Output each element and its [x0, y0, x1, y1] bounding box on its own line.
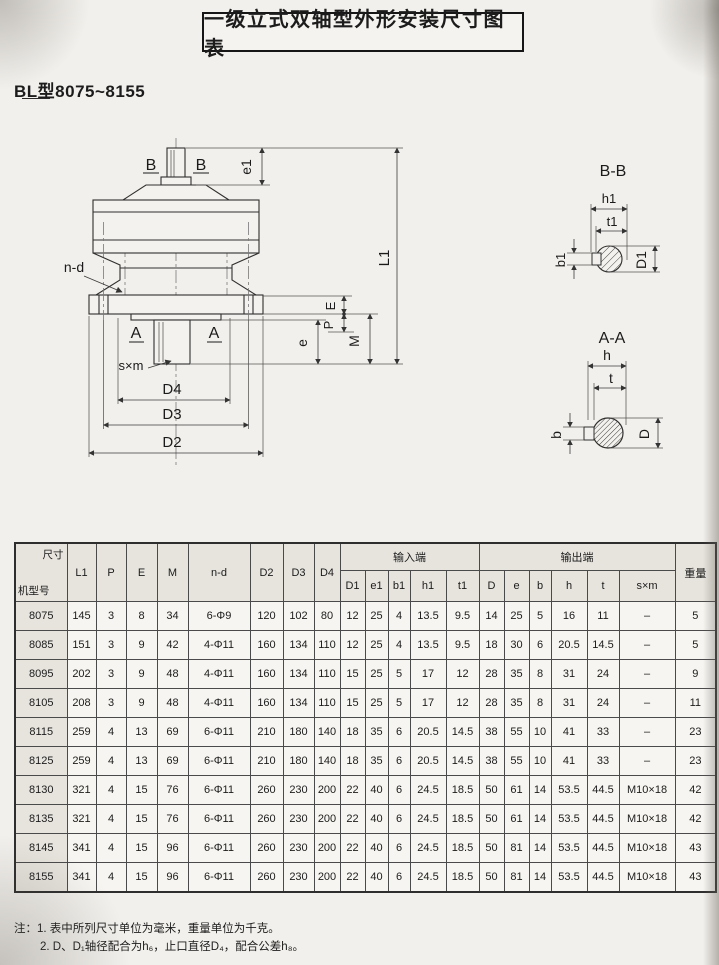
- value-cell: 134: [283, 631, 314, 660]
- value-cell: 12: [340, 602, 365, 631]
- value-cell: 8: [529, 660, 551, 689]
- output-shaft-keyway: [584, 427, 594, 440]
- value-cell: 200: [314, 834, 340, 863]
- value-cell: 200: [314, 805, 340, 834]
- col-header-t1: t1: [446, 571, 479, 602]
- technical-drawing: B B A A n-d s×m e1 L1: [0, 0, 719, 548]
- table-row: 8155341415966-Φ112602302002240624.518.55…: [15, 863, 716, 892]
- value-cell: 5: [675, 602, 716, 631]
- corner-label-size: 尺寸: [43, 547, 64, 562]
- value-cell: 210: [250, 718, 283, 747]
- table-row: 810520839484-Φ11160134110152551712283583…: [15, 689, 716, 718]
- input-shaft-collar: [161, 177, 191, 185]
- col-header-sxm: s×m: [619, 571, 675, 602]
- value-cell: 43: [675, 834, 716, 863]
- col-header-D: D: [479, 571, 504, 602]
- value-cell: 31: [551, 689, 587, 718]
- dim-label-b1: b1: [553, 253, 568, 267]
- dim-label-t1: t1: [607, 214, 618, 229]
- table-row: 807514538346-Φ9120102801225413.59.514255…: [15, 602, 716, 631]
- value-cell: 48: [157, 660, 188, 689]
- value-cell: 6-Φ11: [188, 834, 250, 863]
- section-cut-label-a-right: A: [209, 325, 220, 342]
- value-cell: 15: [126, 805, 157, 834]
- dim-label-e: e: [294, 339, 310, 347]
- dim-label-sxm: s×m: [119, 358, 144, 373]
- dim-label-P: P: [321, 321, 336, 330]
- dim-label-e1: e1: [238, 159, 254, 175]
- corner-label-model: 机型号: [18, 583, 50, 598]
- value-cell: 34: [157, 602, 188, 631]
- value-cell: 3: [96, 689, 126, 718]
- value-cell: 4: [96, 834, 126, 863]
- value-cell: 50: [479, 776, 504, 805]
- value-cell: 4-Φ11: [188, 660, 250, 689]
- value-cell: 48: [157, 689, 188, 718]
- value-cell: 14.5: [446, 747, 479, 776]
- value-cell: 28: [479, 689, 504, 718]
- spigot-step: [131, 314, 221, 320]
- value-cell: 11: [675, 689, 716, 718]
- value-cell: 10: [529, 718, 551, 747]
- value-cell: 6-Φ11: [188, 718, 250, 747]
- value-cell: 6: [388, 834, 410, 863]
- value-cell: 15: [126, 863, 157, 892]
- footnotes: 注：1. 表中所列尺寸单位为毫米，重量单位为千克。 2. D、D₁轴径配合为h₆…: [14, 921, 304, 957]
- value-cell: 110: [314, 689, 340, 718]
- value-cell: 28: [479, 660, 504, 689]
- value-cell: –: [619, 660, 675, 689]
- main-body: [93, 200, 259, 253]
- value-cell: M10×18: [619, 863, 675, 892]
- value-cell: 14: [479, 602, 504, 631]
- value-cell: 5: [388, 689, 410, 718]
- dim-label-n-d: n-d: [64, 259, 84, 275]
- value-cell: 6: [529, 631, 551, 660]
- value-cell: 41: [551, 718, 587, 747]
- value-cell: 24.5: [410, 834, 446, 863]
- value-cell: 80: [314, 602, 340, 631]
- col-header-e1: e1: [365, 571, 388, 602]
- value-cell: 14.5: [587, 631, 619, 660]
- value-cell: 61: [504, 805, 529, 834]
- value-cell: 230: [283, 863, 314, 892]
- value-cell: 40: [365, 805, 388, 834]
- value-cell: 110: [314, 660, 340, 689]
- value-cell: 9.5: [446, 602, 479, 631]
- main-elevation-view: B B A A n-d s×m e1 L1: [64, 138, 403, 466]
- value-cell: 9.5: [446, 631, 479, 660]
- model-cell: 8135: [15, 805, 67, 834]
- col-header-M: M: [157, 543, 188, 602]
- value-cell: 69: [157, 718, 188, 747]
- value-cell: 16: [551, 602, 587, 631]
- col-header-h: h: [551, 571, 587, 602]
- value-cell: –: [619, 602, 675, 631]
- value-cell: 20.5: [551, 631, 587, 660]
- value-cell: 23: [675, 747, 716, 776]
- dim-label-h: h: [603, 347, 611, 363]
- value-cell: 4: [96, 776, 126, 805]
- model-cell: 8130: [15, 776, 67, 805]
- value-cell: M10×18: [619, 805, 675, 834]
- group-header-input-end: 输入端: [340, 543, 479, 571]
- col-header-P: P: [96, 543, 126, 602]
- value-cell: 14: [529, 805, 551, 834]
- table-row: 8130321415766-Φ112602302002240624.518.55…: [15, 776, 716, 805]
- value-cell: 230: [283, 776, 314, 805]
- value-cell: M10×18: [619, 834, 675, 863]
- value-cell: 53.5: [551, 863, 587, 892]
- value-cell: 12: [340, 631, 365, 660]
- value-cell: 18.5: [446, 776, 479, 805]
- value-cell: 38: [479, 718, 504, 747]
- value-cell: 3: [96, 631, 126, 660]
- dim-label-d4: D4: [162, 381, 181, 398]
- value-cell: –: [619, 689, 675, 718]
- model-cell: 8095: [15, 660, 67, 689]
- col-header-weight: 重量: [675, 543, 716, 602]
- value-cell: 41: [551, 747, 587, 776]
- value-cell: 96: [157, 834, 188, 863]
- value-cell: 18.5: [446, 834, 479, 863]
- value-cell: 22: [340, 863, 365, 892]
- value-cell: 40: [365, 776, 388, 805]
- value-cell: 160: [250, 660, 283, 689]
- value-cell: 12: [446, 660, 479, 689]
- value-cell: 22: [340, 834, 365, 863]
- section-aa-title: A-A: [599, 330, 626, 347]
- value-cell: 22: [340, 776, 365, 805]
- col-header-t: t: [587, 571, 619, 602]
- dim-label-D1: D1: [633, 251, 649, 269]
- value-cell: 76: [157, 776, 188, 805]
- dim-label-d2: D2: [162, 434, 181, 451]
- col-header-D2: D2: [250, 543, 283, 602]
- value-cell: 13: [126, 747, 157, 776]
- value-cell: 200: [314, 776, 340, 805]
- value-cell: 15: [126, 776, 157, 805]
- table-header: 尺寸 机型号 L1 P E M n-d D2 D3 D4 输入端 输出端 重量 …: [15, 543, 716, 602]
- value-cell: 6: [388, 747, 410, 776]
- value-cell: 5: [388, 660, 410, 689]
- value-cell: 8: [529, 689, 551, 718]
- value-cell: –: [619, 718, 675, 747]
- value-cell: 69: [157, 747, 188, 776]
- col-header-E: E: [126, 543, 157, 602]
- footnote-1: 注：1. 表中所列尺寸单位为毫米，重量单位为千克。: [14, 921, 304, 939]
- value-cell: 4-Φ11: [188, 689, 250, 718]
- n-d-leader-line: [84, 276, 122, 292]
- value-cell: 14.5: [446, 718, 479, 747]
- value-cell: –: [619, 631, 675, 660]
- value-cell: 38: [479, 747, 504, 776]
- model-cell: 8075: [15, 602, 67, 631]
- value-cell: 3: [96, 660, 126, 689]
- value-cell: 6: [388, 805, 410, 834]
- value-cell: 134: [283, 689, 314, 718]
- dim-label-D: D: [636, 429, 652, 439]
- value-cell: 76: [157, 805, 188, 834]
- value-cell: 20.5: [410, 718, 446, 747]
- top-cover: [123, 185, 229, 200]
- value-cell: 42: [675, 776, 716, 805]
- output-shaft: [154, 320, 190, 364]
- footnote-2: 2. D、D₁轴径配合为h₆，止口直径D₄，配合公差h₈。: [40, 939, 304, 957]
- value-cell: 25: [504, 602, 529, 631]
- value-cell: 18: [479, 631, 504, 660]
- value-cell: 180: [283, 747, 314, 776]
- value-cell: 35: [365, 747, 388, 776]
- value-cell: 24.5: [410, 776, 446, 805]
- value-cell: 6-Φ9: [188, 602, 250, 631]
- value-cell: 4: [96, 863, 126, 892]
- value-cell: 22: [340, 805, 365, 834]
- value-cell: 5: [529, 602, 551, 631]
- value-cell: 341: [67, 834, 96, 863]
- table-row: 808515139424-Φ111601341101225413.59.5183…: [15, 631, 716, 660]
- value-cell: 140: [314, 747, 340, 776]
- value-cell: M10×18: [619, 776, 675, 805]
- value-cell: 13: [126, 718, 157, 747]
- value-cell: 81: [504, 834, 529, 863]
- value-cell: 134: [283, 660, 314, 689]
- value-cell: 13.5: [410, 602, 446, 631]
- value-cell: 9: [126, 689, 157, 718]
- value-cell: 259: [67, 747, 96, 776]
- value-cell: 24: [587, 689, 619, 718]
- value-cell: 230: [283, 805, 314, 834]
- value-cell: 259: [67, 718, 96, 747]
- model-cell: 8085: [15, 631, 67, 660]
- value-cell: 4: [388, 602, 410, 631]
- value-cell: 96: [157, 863, 188, 892]
- value-cell: 53.5: [551, 834, 587, 863]
- value-cell: 210: [250, 747, 283, 776]
- value-cell: 25: [365, 602, 388, 631]
- value-cell: 55: [504, 718, 529, 747]
- value-cell: 140: [314, 718, 340, 747]
- col-header-n-d: n-d: [188, 543, 250, 602]
- value-cell: 321: [67, 776, 96, 805]
- value-cell: 13.5: [410, 631, 446, 660]
- value-cell: 200: [314, 863, 340, 892]
- value-cell: 42: [157, 631, 188, 660]
- dim-label-d3: D3: [162, 406, 181, 423]
- dim-label-E: E: [323, 301, 338, 310]
- value-cell: 17: [410, 689, 446, 718]
- value-cell: 44.5: [587, 805, 619, 834]
- value-cell: 145: [67, 602, 96, 631]
- value-cell: 50: [479, 805, 504, 834]
- dimension-table: 尺寸 机型号 L1 P E M n-d D2 D3 D4 输入端 输出端 重量 …: [14, 542, 717, 893]
- value-cell: 230: [283, 834, 314, 863]
- value-cell: 180: [283, 718, 314, 747]
- value-cell: 6: [388, 863, 410, 892]
- value-cell: 4-Φ11: [188, 631, 250, 660]
- value-cell: 10: [529, 747, 551, 776]
- table-body: 807514538346-Φ9120102801225413.59.514255…: [15, 602, 716, 892]
- value-cell: 160: [250, 689, 283, 718]
- value-cell: 25: [365, 689, 388, 718]
- value-cell: 18.5: [446, 805, 479, 834]
- value-cell: 341: [67, 863, 96, 892]
- model-cell: 8115: [15, 718, 67, 747]
- col-header-L1: L1: [67, 543, 96, 602]
- value-cell: 44.5: [587, 776, 619, 805]
- value-cell: 20.5: [410, 747, 446, 776]
- dim-label-t: t: [609, 370, 613, 386]
- value-cell: 81: [504, 863, 529, 892]
- value-cell: 6-Φ11: [188, 776, 250, 805]
- value-cell: 61: [504, 776, 529, 805]
- value-cell: 40: [365, 834, 388, 863]
- value-cell: 17: [410, 660, 446, 689]
- value-cell: 35: [365, 718, 388, 747]
- value-cell: –: [619, 747, 675, 776]
- value-cell: 260: [250, 805, 283, 834]
- table-row: 8115259413696-Φ112101801401835620.514.53…: [15, 718, 716, 747]
- value-cell: 6: [388, 776, 410, 805]
- value-cell: 120: [250, 602, 283, 631]
- col-header-b: b: [529, 571, 551, 602]
- corner-header-cell: 尺寸 机型号: [15, 543, 67, 602]
- table-row: 8135321415766-Φ112602302002240624.518.55…: [15, 805, 716, 834]
- value-cell: 6-Φ11: [188, 863, 250, 892]
- dim-label-b: b: [548, 431, 564, 439]
- input-shaft-keyway: [592, 253, 601, 265]
- value-cell: 3: [96, 602, 126, 631]
- value-cell: 35: [504, 660, 529, 689]
- value-cell: 4: [96, 718, 126, 747]
- section-cut-label-b-left: B: [146, 157, 157, 174]
- value-cell: 33: [587, 747, 619, 776]
- value-cell: 43: [675, 863, 716, 892]
- value-cell: 42: [675, 805, 716, 834]
- model-cell: 8155: [15, 863, 67, 892]
- value-cell: 6-Φ11: [188, 747, 250, 776]
- section-view-bb: B-B h1 t1 b1 D1: [553, 163, 660, 279]
- value-cell: 208: [67, 689, 96, 718]
- value-cell: 9: [126, 660, 157, 689]
- group-header-output-end: 输出端: [479, 543, 675, 571]
- value-cell: 4: [388, 631, 410, 660]
- value-cell: 15: [340, 689, 365, 718]
- value-cell: 102: [283, 602, 314, 631]
- dim-label-l1: L1: [376, 250, 393, 267]
- value-cell: 151: [67, 631, 96, 660]
- value-cell: 24.5: [410, 805, 446, 834]
- value-cell: 44.5: [587, 863, 619, 892]
- value-cell: 18: [340, 718, 365, 747]
- col-header-h1: h1: [410, 571, 446, 602]
- value-cell: 50: [479, 834, 504, 863]
- value-cell: 31: [551, 660, 587, 689]
- section-cut-label-a-left: A: [131, 325, 142, 342]
- value-cell: 14: [529, 863, 551, 892]
- value-cell: 25: [365, 631, 388, 660]
- value-cell: 25: [365, 660, 388, 689]
- col-header-e: e: [504, 571, 529, 602]
- value-cell: 40: [365, 863, 388, 892]
- section-bb-title: B-B: [600, 163, 627, 180]
- value-cell: 11: [587, 602, 619, 631]
- dim-label-M: M: [346, 335, 362, 347]
- value-cell: 18.5: [446, 863, 479, 892]
- section-view-aa: A-A h t b D: [548, 330, 663, 454]
- value-cell: 9: [126, 631, 157, 660]
- mounting-flange: [89, 295, 263, 314]
- table-row: 809520239484-Φ11160134110152551712283583…: [15, 660, 716, 689]
- col-header-b1: b1: [388, 571, 410, 602]
- value-cell: 24: [587, 660, 619, 689]
- value-cell: 4: [96, 805, 126, 834]
- value-cell: 33: [587, 718, 619, 747]
- catalog-page: 一级立式双轴型外形安装尺寸图表 BL型8075~8155: [0, 0, 719, 965]
- value-cell: 44.5: [587, 834, 619, 863]
- model-cell: 8145: [15, 834, 67, 863]
- value-cell: 4: [96, 747, 126, 776]
- col-header-D3: D3: [283, 543, 314, 602]
- value-cell: 260: [250, 863, 283, 892]
- value-cell: 9: [675, 660, 716, 689]
- value-cell: 321: [67, 805, 96, 834]
- value-cell: 6: [388, 718, 410, 747]
- value-cell: 50: [479, 863, 504, 892]
- model-cell: 8125: [15, 747, 67, 776]
- value-cell: 53.5: [551, 805, 587, 834]
- value-cell: 14: [529, 776, 551, 805]
- value-cell: 23: [675, 718, 716, 747]
- model-cell: 8105: [15, 689, 67, 718]
- value-cell: 260: [250, 776, 283, 805]
- table-row: 8145341415966-Φ112602302002240624.518.55…: [15, 834, 716, 863]
- dim-label-h1: h1: [602, 191, 616, 206]
- value-cell: 160: [250, 631, 283, 660]
- value-cell: 8: [126, 602, 157, 631]
- value-cell: 24.5: [410, 863, 446, 892]
- value-cell: 53.5: [551, 776, 587, 805]
- col-header-D1: D1: [340, 571, 365, 602]
- output-shaft-section-circle: [593, 418, 623, 448]
- value-cell: 110: [314, 631, 340, 660]
- value-cell: 35: [504, 689, 529, 718]
- value-cell: 14: [529, 834, 551, 863]
- value-cell: 202: [67, 660, 96, 689]
- input-shaft: [167, 148, 185, 178]
- table-row: 8125259413696-Φ112101801401835620.514.53…: [15, 747, 716, 776]
- value-cell: 30: [504, 631, 529, 660]
- section-cut-label-b-right: B: [196, 157, 207, 174]
- value-cell: 12: [446, 689, 479, 718]
- value-cell: 15: [340, 660, 365, 689]
- value-cell: 260: [250, 834, 283, 863]
- value-cell: 5: [675, 631, 716, 660]
- value-cell: 6-Φ11: [188, 805, 250, 834]
- value-cell: 55: [504, 747, 529, 776]
- col-header-D4: D4: [314, 543, 340, 602]
- value-cell: 15: [126, 834, 157, 863]
- value-cell: 18: [340, 747, 365, 776]
